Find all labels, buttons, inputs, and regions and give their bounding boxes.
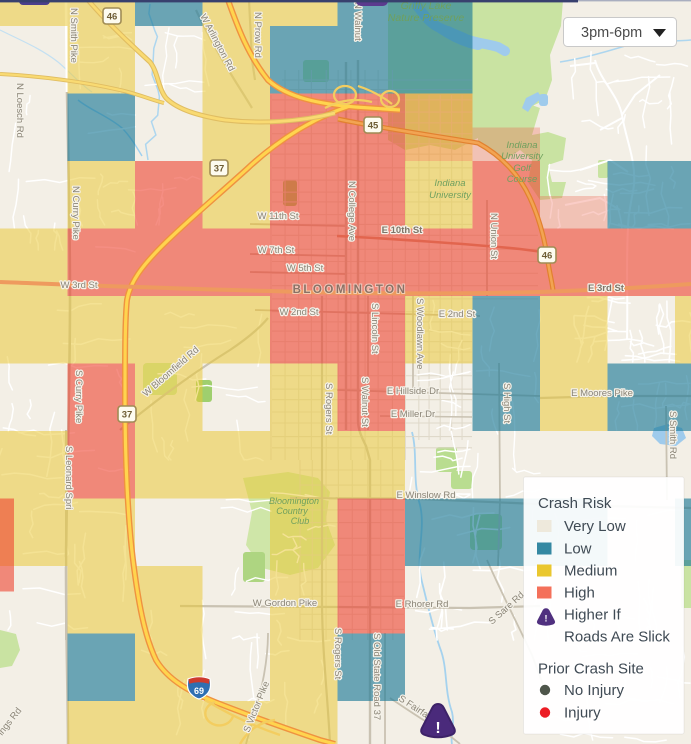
svg-text:S Rogers St: S Rogers St <box>323 383 334 435</box>
svg-text:S Rogers St: S Rogers St <box>332 628 343 680</box>
svg-text:N College Ave: N College Ave <box>346 181 357 241</box>
svg-text:3pm-6pm: 3pm-6pm <box>581 25 642 41</box>
svg-text:S Smith Rd: S Smith Rd <box>667 411 678 459</box>
svg-text:BLOOMINGTON: BLOOMINGTON <box>293 284 408 296</box>
svg-text:E Miller Dr: E Miller Dr <box>391 409 435 420</box>
svg-text:45: 45 <box>368 121 379 132</box>
svg-text:S Curry Pike: S Curry Pike <box>73 370 84 423</box>
svg-text:Golf: Golf <box>513 163 532 174</box>
svg-text:!: ! <box>435 720 440 737</box>
svg-text:W 2nd St: W 2nd St <box>279 307 318 318</box>
svg-text:E 10th St: E 10th St <box>382 225 423 236</box>
svg-text:No Injury: No Injury <box>564 682 625 699</box>
svg-text:Medium: Medium <box>564 563 617 580</box>
svg-text:W 7th St: W 7th St <box>258 245 295 256</box>
svg-text:S Woodlawn Ave: S Woodlawn Ave <box>414 298 425 369</box>
svg-text:E Hillside Dr: E Hillside Dr <box>387 386 439 397</box>
svg-text:46: 46 <box>107 12 118 23</box>
svg-text:S Old State Road 37: S Old State Road 37 <box>371 633 382 720</box>
svg-text:W 5th St: W 5th St <box>287 263 324 274</box>
svg-text:69: 69 <box>194 686 204 696</box>
svg-text:Indiana: Indiana <box>434 178 465 189</box>
svg-text:Higher If: Higher If <box>564 607 622 624</box>
svg-text:!: ! <box>545 614 548 624</box>
svg-text:W 11th St: W 11th St <box>257 211 298 222</box>
svg-text:N Smith Pike: N Smith Pike <box>68 8 79 63</box>
svg-text:E 2nd St: E 2nd St <box>439 309 476 320</box>
svg-text:Injury: Injury <box>564 705 601 722</box>
svg-text:E Moores Pike: E Moores Pike <box>571 388 633 399</box>
svg-text:Club: Club <box>291 516 310 526</box>
svg-text:Country: Country <box>276 506 308 516</box>
svg-text:S Walnut St: S Walnut St <box>359 377 370 427</box>
svg-text:University: University <box>501 151 544 162</box>
svg-text:N Union St: N Union St <box>488 213 499 259</box>
svg-text:N Prow Rd: N Prow Rd <box>252 12 263 58</box>
svg-text:High: High <box>564 585 595 602</box>
svg-text:W 3rd St: W 3rd St <box>61 280 98 291</box>
svg-text:37: 37 <box>122 410 133 421</box>
svg-text:Crash Risk: Crash Risk <box>538 495 612 512</box>
svg-text:Low: Low <box>564 541 592 558</box>
svg-text:S Leonard Spri: S Leonard Spri <box>63 446 74 509</box>
svg-text:37: 37 <box>214 164 225 175</box>
svg-text:S Lincoln St: S Lincoln St <box>369 303 380 354</box>
svg-text:46: 46 <box>542 251 553 262</box>
svg-text:University: University <box>429 190 472 201</box>
svg-text:Very Low: Very Low <box>564 518 626 535</box>
svg-text:E 3rd St: E 3rd St <box>588 283 625 294</box>
svg-text:Roads Are Slick: Roads Are Slick <box>564 629 670 646</box>
svg-text:Indiana: Indiana <box>506 140 537 151</box>
svg-text:N Walnut: N Walnut <box>352 2 363 41</box>
svg-text:E Rhorer Rd: E Rhorer Rd <box>396 599 449 610</box>
svg-text:S High St: S High St <box>501 383 512 423</box>
svg-text:Bloomington: Bloomington <box>269 496 319 506</box>
svg-text:E Winslow Rd: E Winslow Rd <box>396 490 455 501</box>
svg-text:W Gordon Pike: W Gordon Pike <box>253 598 317 609</box>
svg-text:Nature Preserve: Nature Preserve <box>388 12 465 24</box>
svg-text:N Curry Pike: N Curry Pike <box>70 186 81 240</box>
svg-text:Course: Course <box>507 174 538 185</box>
svg-text:Prior Crash Site: Prior Crash Site <box>538 661 644 678</box>
svg-text:N Loesch Rd: N Loesch Rd <box>14 83 25 138</box>
